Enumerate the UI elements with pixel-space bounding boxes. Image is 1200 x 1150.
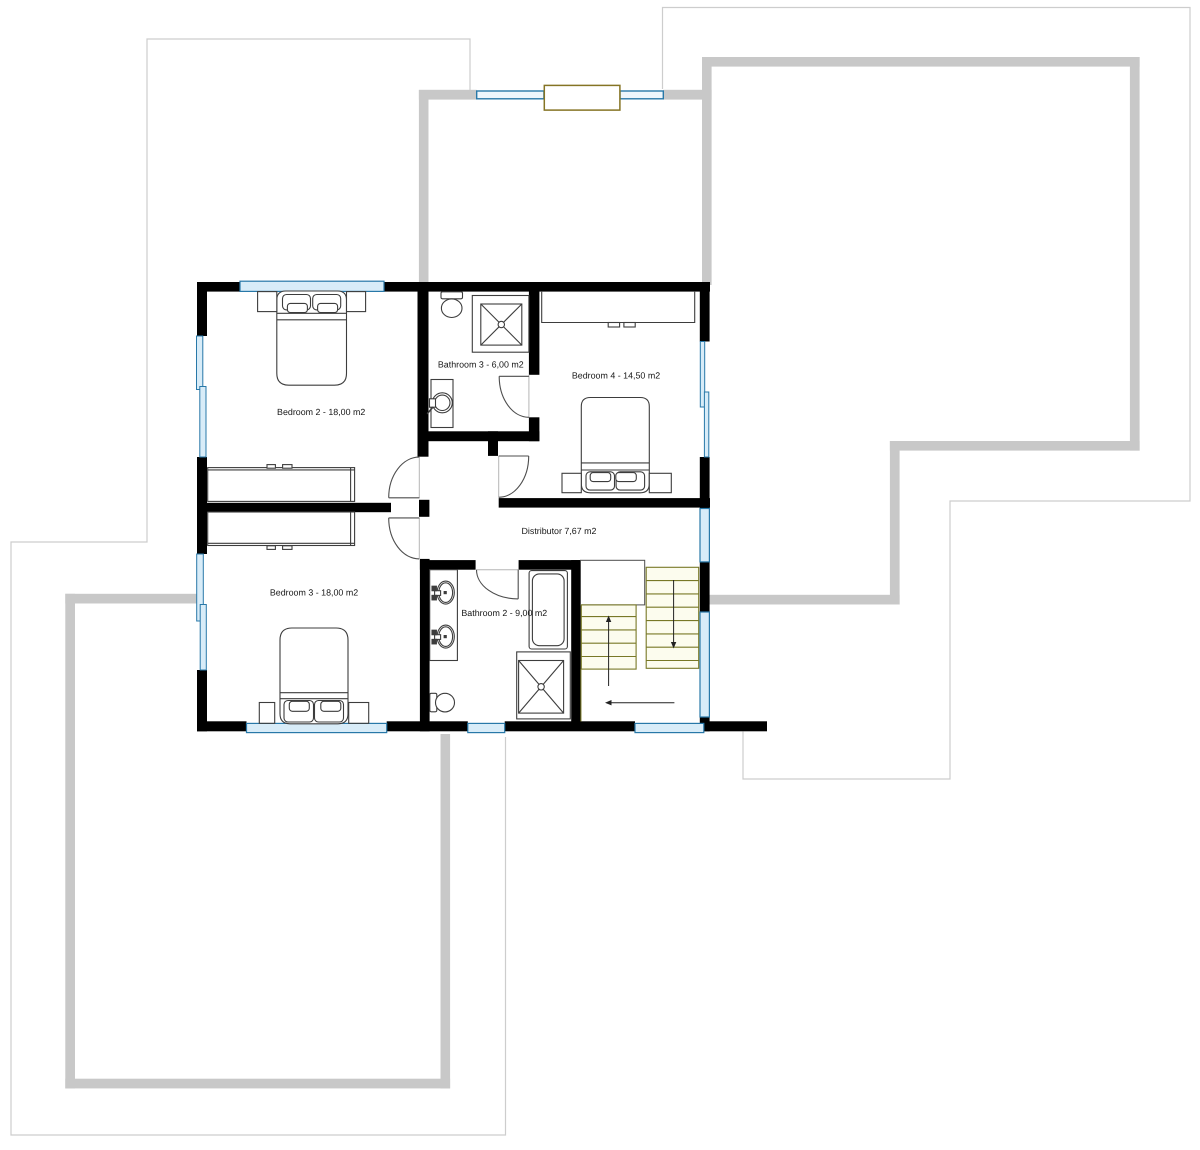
svg-text:Bedroom 2 - 18,00 m2: Bedroom 2 - 18,00 m2 [277, 407, 365, 417]
svg-text:Bathroom 3 - 6,00 m2: Bathroom 3 - 6,00 m2 [438, 360, 524, 370]
svg-text:Bedroom 4 - 14,50 m2: Bedroom 4 - 14,50 m2 [572, 371, 660, 381]
svg-text:Distributor 7,67 m2: Distributor 7,67 m2 [522, 526, 597, 536]
svg-text:Bathroom 2 - 9,00 m2: Bathroom 2 - 9,00 m2 [461, 608, 547, 618]
svg-text:Bedroom 3 - 18,00 m2: Bedroom 3 - 18,00 m2 [270, 588, 358, 598]
